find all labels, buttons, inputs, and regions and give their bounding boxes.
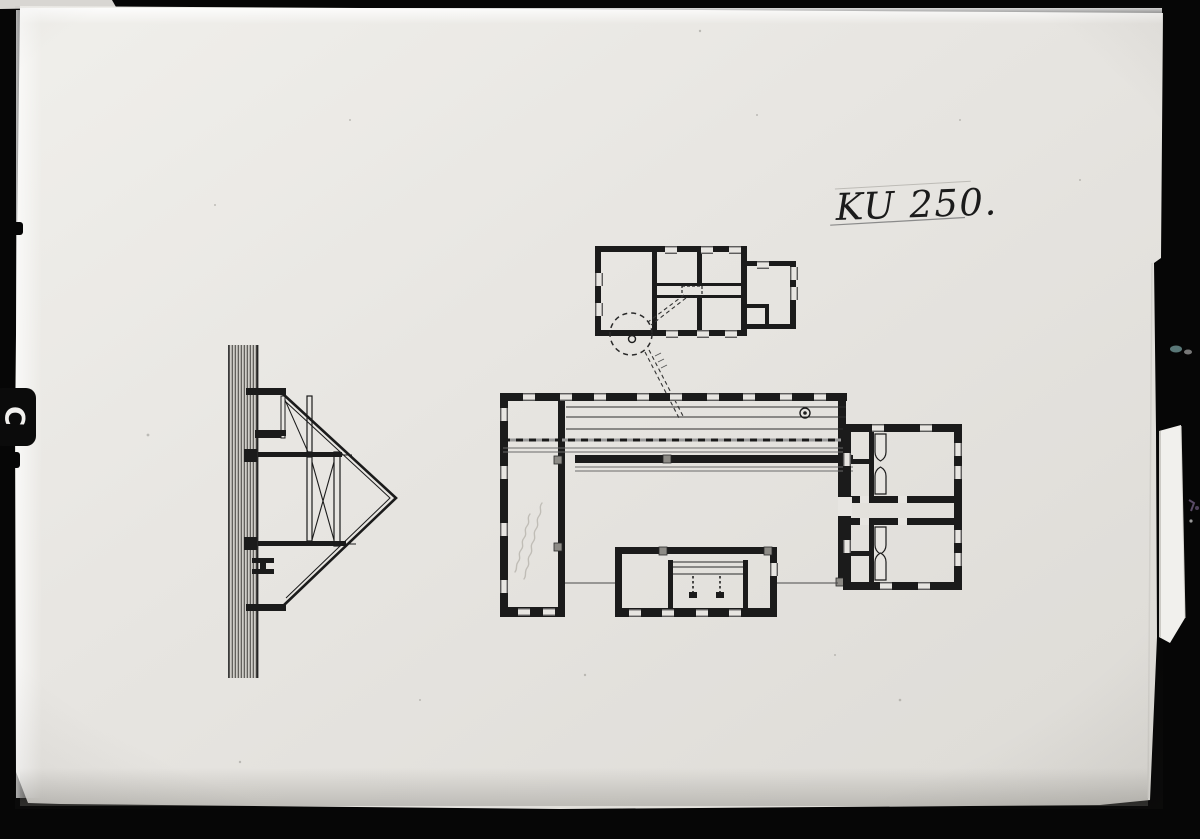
- overlay-paper-strip: [1159, 425, 1185, 643]
- film-tab-glyph: C: [0, 406, 30, 427]
- negative-photo-of-architectural-drawing: KU 250. C: [0, 0, 1200, 839]
- photo-viewport: KU 250. C: [0, 0, 1200, 839]
- vignette: [15, 6, 1163, 809]
